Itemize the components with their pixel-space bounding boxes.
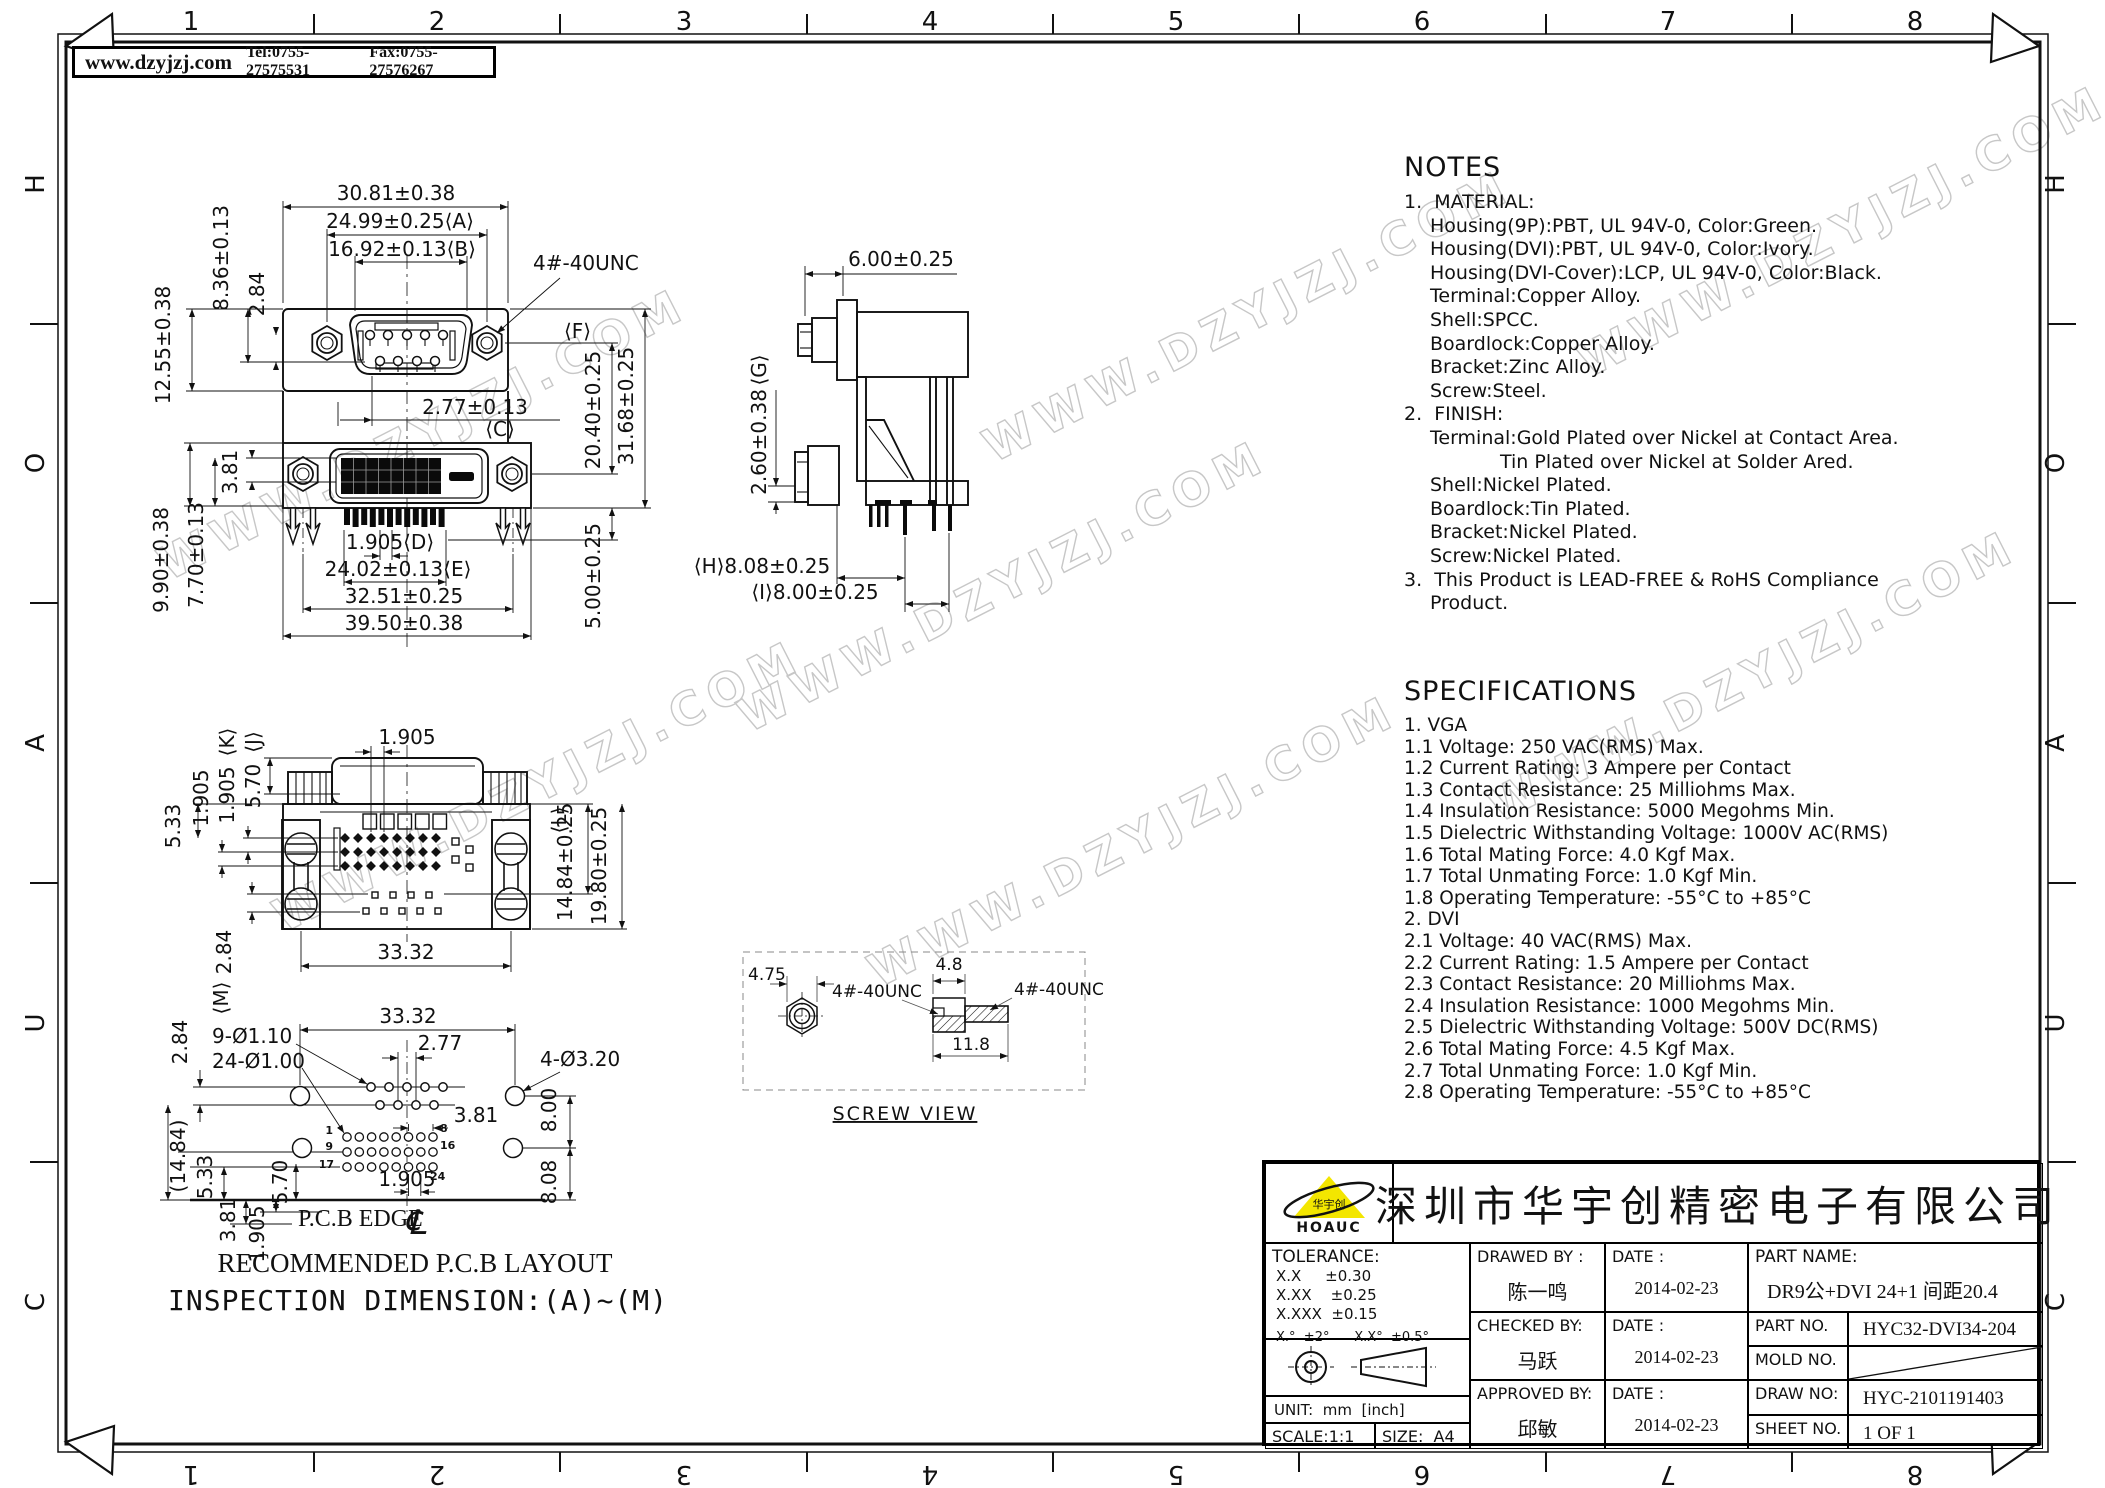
dim-text: ⟨G⟩ <box>747 354 771 385</box>
jackscrew-nut <box>472 326 501 360</box>
projection-symbol-cell <box>1265 1339 1470 1396</box>
zone-label: 5 <box>1168 7 1185 37</box>
dim-text: 20.40±0.25 <box>581 351 605 470</box>
dim-text: 19.80±0.25 <box>587 807 611 926</box>
dim-text: 4.75 <box>748 965 786 985</box>
front-view-dim-texts: 30.81±0.38 24.99±0.25⟨A⟩ 16.92±0.13⟨B⟩ 4… <box>149 181 639 635</box>
draw-no-label: DRAW NO: <box>1748 1380 1848 1415</box>
note-line: Housing(DVI-Cover):LCP, UL 94V-0, Color:… <box>1404 262 1924 286</box>
zone-label: 4 <box>922 1459 939 1488</box>
part-name-label: PART NAME: <box>1749 1244 2042 1267</box>
date-label: DATE : <box>1606 1381 1747 1403</box>
dim-text: 1.905 <box>378 1167 435 1191</box>
specifications-section: SPECIFICATIONS 1. VGA 1.1 Voltage: 250 V… <box>1404 676 1924 1104</box>
spec-line: 1.3 Contact Resistance: 25 Milliohms Max… <box>1404 780 1924 802</box>
zone-label: 8 <box>1907 7 1924 37</box>
zone-label: H <box>21 174 51 194</box>
spec-line: 1.2 Current Rating: 3 Ampere per Contact <box>1404 758 1924 780</box>
company-logo: 华宇创 HOAUC <box>1265 1163 1393 1243</box>
zone-label: C <box>2041 1293 2071 1311</box>
part-name-cell: PART NAME: DR9公+DVI 24+1 间距20.4 <box>1748 1243 2043 1312</box>
dvi-terminals <box>344 508 445 527</box>
note-line: 2. FINISH: <box>1404 403 1924 427</box>
mold-no-label: MOLD NO. <box>1748 1346 1848 1380</box>
dim-text: 5.33 <box>161 804 185 849</box>
dim-text: 14.84±0.25 <box>553 803 577 922</box>
empty-cell-slash-icon <box>1849 1347 2042 1379</box>
spec-line: 2.8 Operating Temperature: -55°C to +85°… <box>1404 1082 1924 1104</box>
db9-pins <box>366 331 448 373</box>
dim-text: 2.77 <box>418 1031 463 1055</box>
note-line: Shell:SPCC. <box>1404 309 1924 333</box>
approved-by-name: 邱敏 <box>1471 1413 1604 1442</box>
note-line: Terminal:Gold Plated over Nickel at Cont… <box>1404 427 1924 451</box>
spec-line: 1.4 Insulation Resistance: 5000 Megohms … <box>1404 801 1924 823</box>
spec-line: 2.2 Current Rating: 1.5 Ampere per Conta… <box>1404 953 1924 975</box>
dim-text: 12.55±0.38 <box>151 286 175 405</box>
spec-line: 2.6 Total Mating Force: 4.5 Kgf Max. <box>1404 1039 1924 1061</box>
spec-line: 2.4 Insulation Resistance: 1000 Megohms … <box>1404 996 1924 1018</box>
svg-text:华宇创: 华宇创 <box>1313 1197 1346 1211</box>
note-line: Boardlock:Copper Alloy. <box>1404 333 1924 357</box>
zone-label: 3 <box>676 1459 693 1488</box>
size-cell: SIZE: A4 <box>1375 1423 1470 1449</box>
zone-label: 5 <box>1168 1459 1185 1488</box>
checked-by-cell: CHECKED BY: 马跃 <box>1470 1312 1605 1380</box>
dim-text: 24.02±0.13⟨E⟩ <box>325 557 472 581</box>
pin-number: 1 <box>325 1124 333 1137</box>
dim-text: 11.8 <box>952 1035 990 1055</box>
dim-text: 32.51±0.25 <box>345 584 464 608</box>
drawed-date: 2014-02-23 <box>1606 1278 1747 1299</box>
header-contact-bar: www.dzyjzj.com Tel:0755-27575531 Fax:075… <box>72 46 496 78</box>
dim-text: 31.68±0.25 <box>614 347 638 466</box>
notes-section: NOTES 1. MATERIAL: Housing(9P):PBT, UL 9… <box>1404 152 1924 616</box>
side-view: 6.00±0.25 ⟨G⟩ 2.60±0.38 ⟨H⟩8.08±0.25 ⟨I⟩… <box>694 247 968 612</box>
sheet-no-value: 1 OF 1 <box>1848 1415 2043 1449</box>
part-no-value: HYC32-DVI34-204 <box>1848 1312 2043 1346</box>
tolerance-row: X.XX ±0.25 <box>1266 1286 1469 1305</box>
dim-text: 8.08 <box>537 1160 561 1205</box>
zone-label: A <box>2041 734 2071 752</box>
dim-text: 8.00 <box>537 1088 561 1133</box>
spec-line: 1. VGA <box>1404 715 1924 737</box>
inspection-dimension-note: INSPECTION DIMENSION:(A)~(M) <box>168 1284 668 1317</box>
zone-label: U <box>21 1013 51 1032</box>
note-line: Screw:Steel. <box>1404 380 1924 404</box>
pin-number: 9 <box>325 1140 333 1153</box>
dim-text: 4#-40UNC <box>533 251 639 275</box>
hole-callout: 24-Ø1.00 <box>212 1049 305 1073</box>
date-label: DATE : <box>1606 1244 1747 1266</box>
dim-text: 3.81 <box>454 1103 499 1127</box>
note-line: Housing(9P):PBT, UL 94V-0, Color:Green. <box>1404 215 1924 239</box>
pin-number: 17 <box>319 1158 334 1171</box>
part-no-label: PART NO. <box>1748 1312 1848 1346</box>
pcb-layout-view: 2.84 9-Ø1.10 24-Ø1.00 33.32 2.77 4-Ø3.20… <box>160 1004 620 1278</box>
zone-label: 1 <box>183 7 200 37</box>
company-name: 深圳市华宇创精密电子有限公司 <box>1393 1163 2043 1243</box>
drawing-sheet: WWW.DZYJZJ.COM WWW.DZYJZJ.COM WWW.DZYJZJ… <box>0 0 2105 1488</box>
dim-text: 33.32 <box>377 940 434 964</box>
corner-arrow-icon <box>66 1426 114 1474</box>
note-line: 3. This Product is LEAD-FREE & RoHS Comp… <box>1404 569 1924 593</box>
centerline-symbol: ℄ <box>404 1205 427 1242</box>
notes-title: NOTES <box>1404 152 1924 183</box>
note-line: Terminal:Copper Alloy. <box>1404 285 1924 309</box>
dim-text: (14.84) <box>166 1120 190 1193</box>
dim-text: 5.33 <box>193 1155 217 1200</box>
note-line: Boardlock:Tin Plated. <box>1404 498 1924 522</box>
sheet-no-label: SHEET NO. <box>1748 1415 1848 1449</box>
note-line: Housing(DVI):PBT, UL 94V-0, Color:Ivory. <box>1404 238 1924 262</box>
dim-text: ⟨C⟩ <box>485 417 515 441</box>
spec-line: 2.1 Voltage: 40 VAC(RMS) Max. <box>1404 931 1924 953</box>
dvi-contact-block <box>341 458 474 494</box>
zone-label: 6 <box>1414 1459 1431 1488</box>
title-block: 华宇创 HOAUC 深圳市华宇创精密电子有限公司 TOLERANCE: X.X … <box>1262 1160 2040 1446</box>
note-line: Shell:Nickel Plated. <box>1404 474 1924 498</box>
dim-text: 2.77±0.13 <box>422 395 528 419</box>
approved-by-cell: APPROVED BY: 邱敏 <box>1470 1380 1605 1449</box>
zone-label: 8 <box>1907 1459 1924 1488</box>
note-line: Screw:Nickel Plated. <box>1404 545 1924 569</box>
zone-label: 2 <box>429 7 446 37</box>
spec-line: 2.3 Contact Resistance: 20 Milliohms Max… <box>1404 974 1924 996</box>
telephone-number: Tel:0755-27575531 <box>246 44 355 80</box>
spec-line: 2. DVI <box>1404 909 1924 931</box>
watermark-text: WWW.DZYJZJ.COM <box>859 684 1406 998</box>
unit-cell: UNIT: mm [inch] <box>1265 1396 1470 1423</box>
note-line: Tin Plated over Nickel at Solder Ared. <box>1404 451 1924 475</box>
note-line: Bracket:Zinc Alloy. <box>1404 356 1924 380</box>
side-view-dim-texts: 6.00±0.25 ⟨G⟩ 2.60±0.38 ⟨H⟩8.08±0.25 ⟨I⟩… <box>694 247 954 604</box>
dim-text: 4.8 <box>935 955 962 975</box>
dim-text: 7.70±0.13 <box>184 502 208 608</box>
zone-label: 6 <box>1414 7 1431 37</box>
spec-line: 1.7 Total Unmating Force: 1.0 Kgf Min. <box>1404 866 1924 888</box>
fax-number: Fax:0755-27576267 <box>369 44 483 80</box>
tolerance-row: X.XXX ±0.15 <box>1266 1305 1469 1324</box>
dim-text: ⟨M⟩ <box>209 982 233 1015</box>
zone-label: 3 <box>676 7 693 37</box>
specifications-title: SPECIFICATIONS <box>1404 676 1924 707</box>
spec-line: 1.1 Voltage: 250 VAC(RMS) Max. <box>1404 737 1924 759</box>
part-name-value: DR9公+DVI 24+1 间距20.4 <box>1749 1267 2042 1304</box>
dim-text: 2.84 <box>168 1020 192 1065</box>
approved-date-cell: DATE : 2014-02-23 <box>1605 1380 1748 1449</box>
hole-callout: 9-Ø1.10 <box>212 1024 292 1048</box>
screw-view-texts: 4.75 4#-40UNC 4#-40UNC 4.8 11.8 SCREW VI… <box>748 955 1104 1125</box>
spec-line: 2.7 Total Unmating Force: 1.0 Kgf Min. <box>1404 1061 1924 1083</box>
dim-text: ⟨F⟩ <box>564 319 591 343</box>
jackscrew-nut <box>288 457 317 491</box>
drawed-by-name: 陈一鸣 <box>1471 1276 1604 1305</box>
jackscrew-nut <box>497 457 526 491</box>
scale-cell: SCALE:1:1 <box>1265 1423 1375 1449</box>
pcb-caption: RECOMMENDED P.C.B LAYOUT <box>217 1248 613 1278</box>
spec-line: 1.5 Dielectric Withstanding Voltage: 100… <box>1404 823 1924 845</box>
tolerance-title: TOLERANCE: <box>1266 1244 1469 1267</box>
dim-text: 2.84 <box>245 272 269 317</box>
tolerance-cell: TOLERANCE: X.X ±0.30 X.XX ±0.25 X.XXX ±0… <box>1265 1243 1470 1339</box>
dim-text: 1.905⟨D⟩ <box>346 530 434 554</box>
spec-line: 2.5 Dielectric Withstanding Voltage: 500… <box>1404 1017 1924 1039</box>
dim-text: ⟨K⟩ <box>215 728 239 757</box>
zone-label: 1 <box>183 1459 200 1488</box>
hole-callout: 4-Ø3.20 <box>540 1047 620 1071</box>
tolerance-row: X.X ±0.30 <box>1266 1267 1469 1286</box>
dim-text: ⟨J⟩ <box>241 731 265 753</box>
logo-text: HOAUC <box>1296 1220 1361 1236</box>
date-label: DATE : <box>1606 1313 1747 1335</box>
note-line: 1. MATERIAL: <box>1404 191 1924 215</box>
dim-text: 5.70 <box>268 1160 292 1205</box>
approved-date: 2014-02-23 <box>1606 1415 1747 1436</box>
spec-line: 1.6 Total Mating Force: 4.0 Kgf Max. <box>1404 845 1924 867</box>
zone-label: O <box>2041 453 2071 473</box>
dim-text: ⟨I⟩8.00±0.25 <box>751 580 878 604</box>
dim-text: 8.36±0.13 <box>209 205 233 311</box>
dim-text: 4#-40UNC <box>1014 980 1104 1000</box>
note-line: Product. <box>1404 592 1924 616</box>
screw-view-caption: SCREW VIEW <box>833 1103 978 1125</box>
checked-by-name: 马跃 <box>1471 1345 1604 1374</box>
zone-label: O <box>21 453 51 473</box>
dim-text: ⟨H⟩8.08±0.25 <box>694 554 830 578</box>
dim-text: 39.50±0.38 <box>345 611 464 635</box>
pin-number: 16 <box>440 1139 456 1152</box>
note-line: Bracket:Nickel Plated. <box>1404 521 1924 545</box>
corner-arrow-icon <box>1991 14 2039 62</box>
dim-text: 2.84 <box>212 930 236 975</box>
checked-date-cell: DATE : 2014-02-23 <box>1605 1312 1748 1380</box>
drawed-by-cell: DRAWED BY : 陈一鸣 <box>1470 1243 1605 1312</box>
drawed-date-cell: DATE : 2014-02-23 <box>1605 1243 1748 1312</box>
first-angle-projection-icon <box>1266 1340 1466 1394</box>
zone-label: 7 <box>1660 7 1677 37</box>
mold-no-value-empty <box>1848 1346 2043 1380</box>
dim-text: 33.32 <box>379 1004 436 1028</box>
hoauc-logo-icon: 华宇创 <box>1279 1170 1379 1222</box>
jackscrew-nut <box>312 326 341 360</box>
zone-label: 7 <box>1660 1459 1677 1488</box>
dim-text: 16.92±0.13⟨B⟩ <box>328 237 476 261</box>
dim-text: 24.99±0.25⟨A⟩ <box>326 209 474 233</box>
pin-number: 24 <box>430 1170 446 1183</box>
checked-date: 2014-02-23 <box>1606 1347 1747 1368</box>
dim-text: 9.90±0.38 <box>149 507 173 613</box>
dim-text: 6.00±0.25 <box>848 247 954 271</box>
pin-number: 8 <box>440 1122 448 1135</box>
zone-label: C <box>21 1293 51 1311</box>
dim-text: 30.81±0.38 <box>337 181 456 205</box>
zone-label: U <box>2041 1013 2071 1032</box>
draw-no-value: HYC-2101191403 <box>1848 1380 2043 1415</box>
dim-text: 5.70 <box>241 764 265 809</box>
dim-text: 1.905 <box>215 766 239 823</box>
dim-text: 4#-40UNC <box>832 982 922 1002</box>
watermark-text: WWW.DZYJZJ.COM <box>264 629 811 943</box>
zone-label: 4 <box>922 7 939 37</box>
dim-text: 2.60±0.38 <box>747 389 771 495</box>
approved-by-label: APPROVED BY: <box>1471 1381 1604 1403</box>
zone-label: A <box>21 734 51 752</box>
website-link[interactable]: www.dzyjzj.com <box>85 50 232 75</box>
screw-view: 4.75 4#-40UNC 4#-40UNC 4.8 11.8 SCREW VI… <box>743 952 1104 1125</box>
checked-by-label: CHECKED BY: <box>1471 1313 1604 1335</box>
drawed-by-label: DRAWED BY : <box>1471 1244 1604 1266</box>
dim-text: 1.905 <box>378 725 435 749</box>
dim-text: 3.81 <box>218 450 242 495</box>
dim-text: 3.81 <box>216 1198 240 1243</box>
zone-label: 2 <box>429 1459 446 1488</box>
spec-line: 1.8 Operating Temperature: -55°C to +85°… <box>1404 888 1924 910</box>
dim-text: 5.00±0.25 <box>581 523 605 629</box>
pcb-dim-texts: 2.84 9-Ø1.10 24-Ø1.00 33.32 2.77 4-Ø3.20… <box>166 1004 620 1278</box>
zone-label: H <box>2041 174 2071 194</box>
dim-text: 1.905 <box>189 769 213 826</box>
